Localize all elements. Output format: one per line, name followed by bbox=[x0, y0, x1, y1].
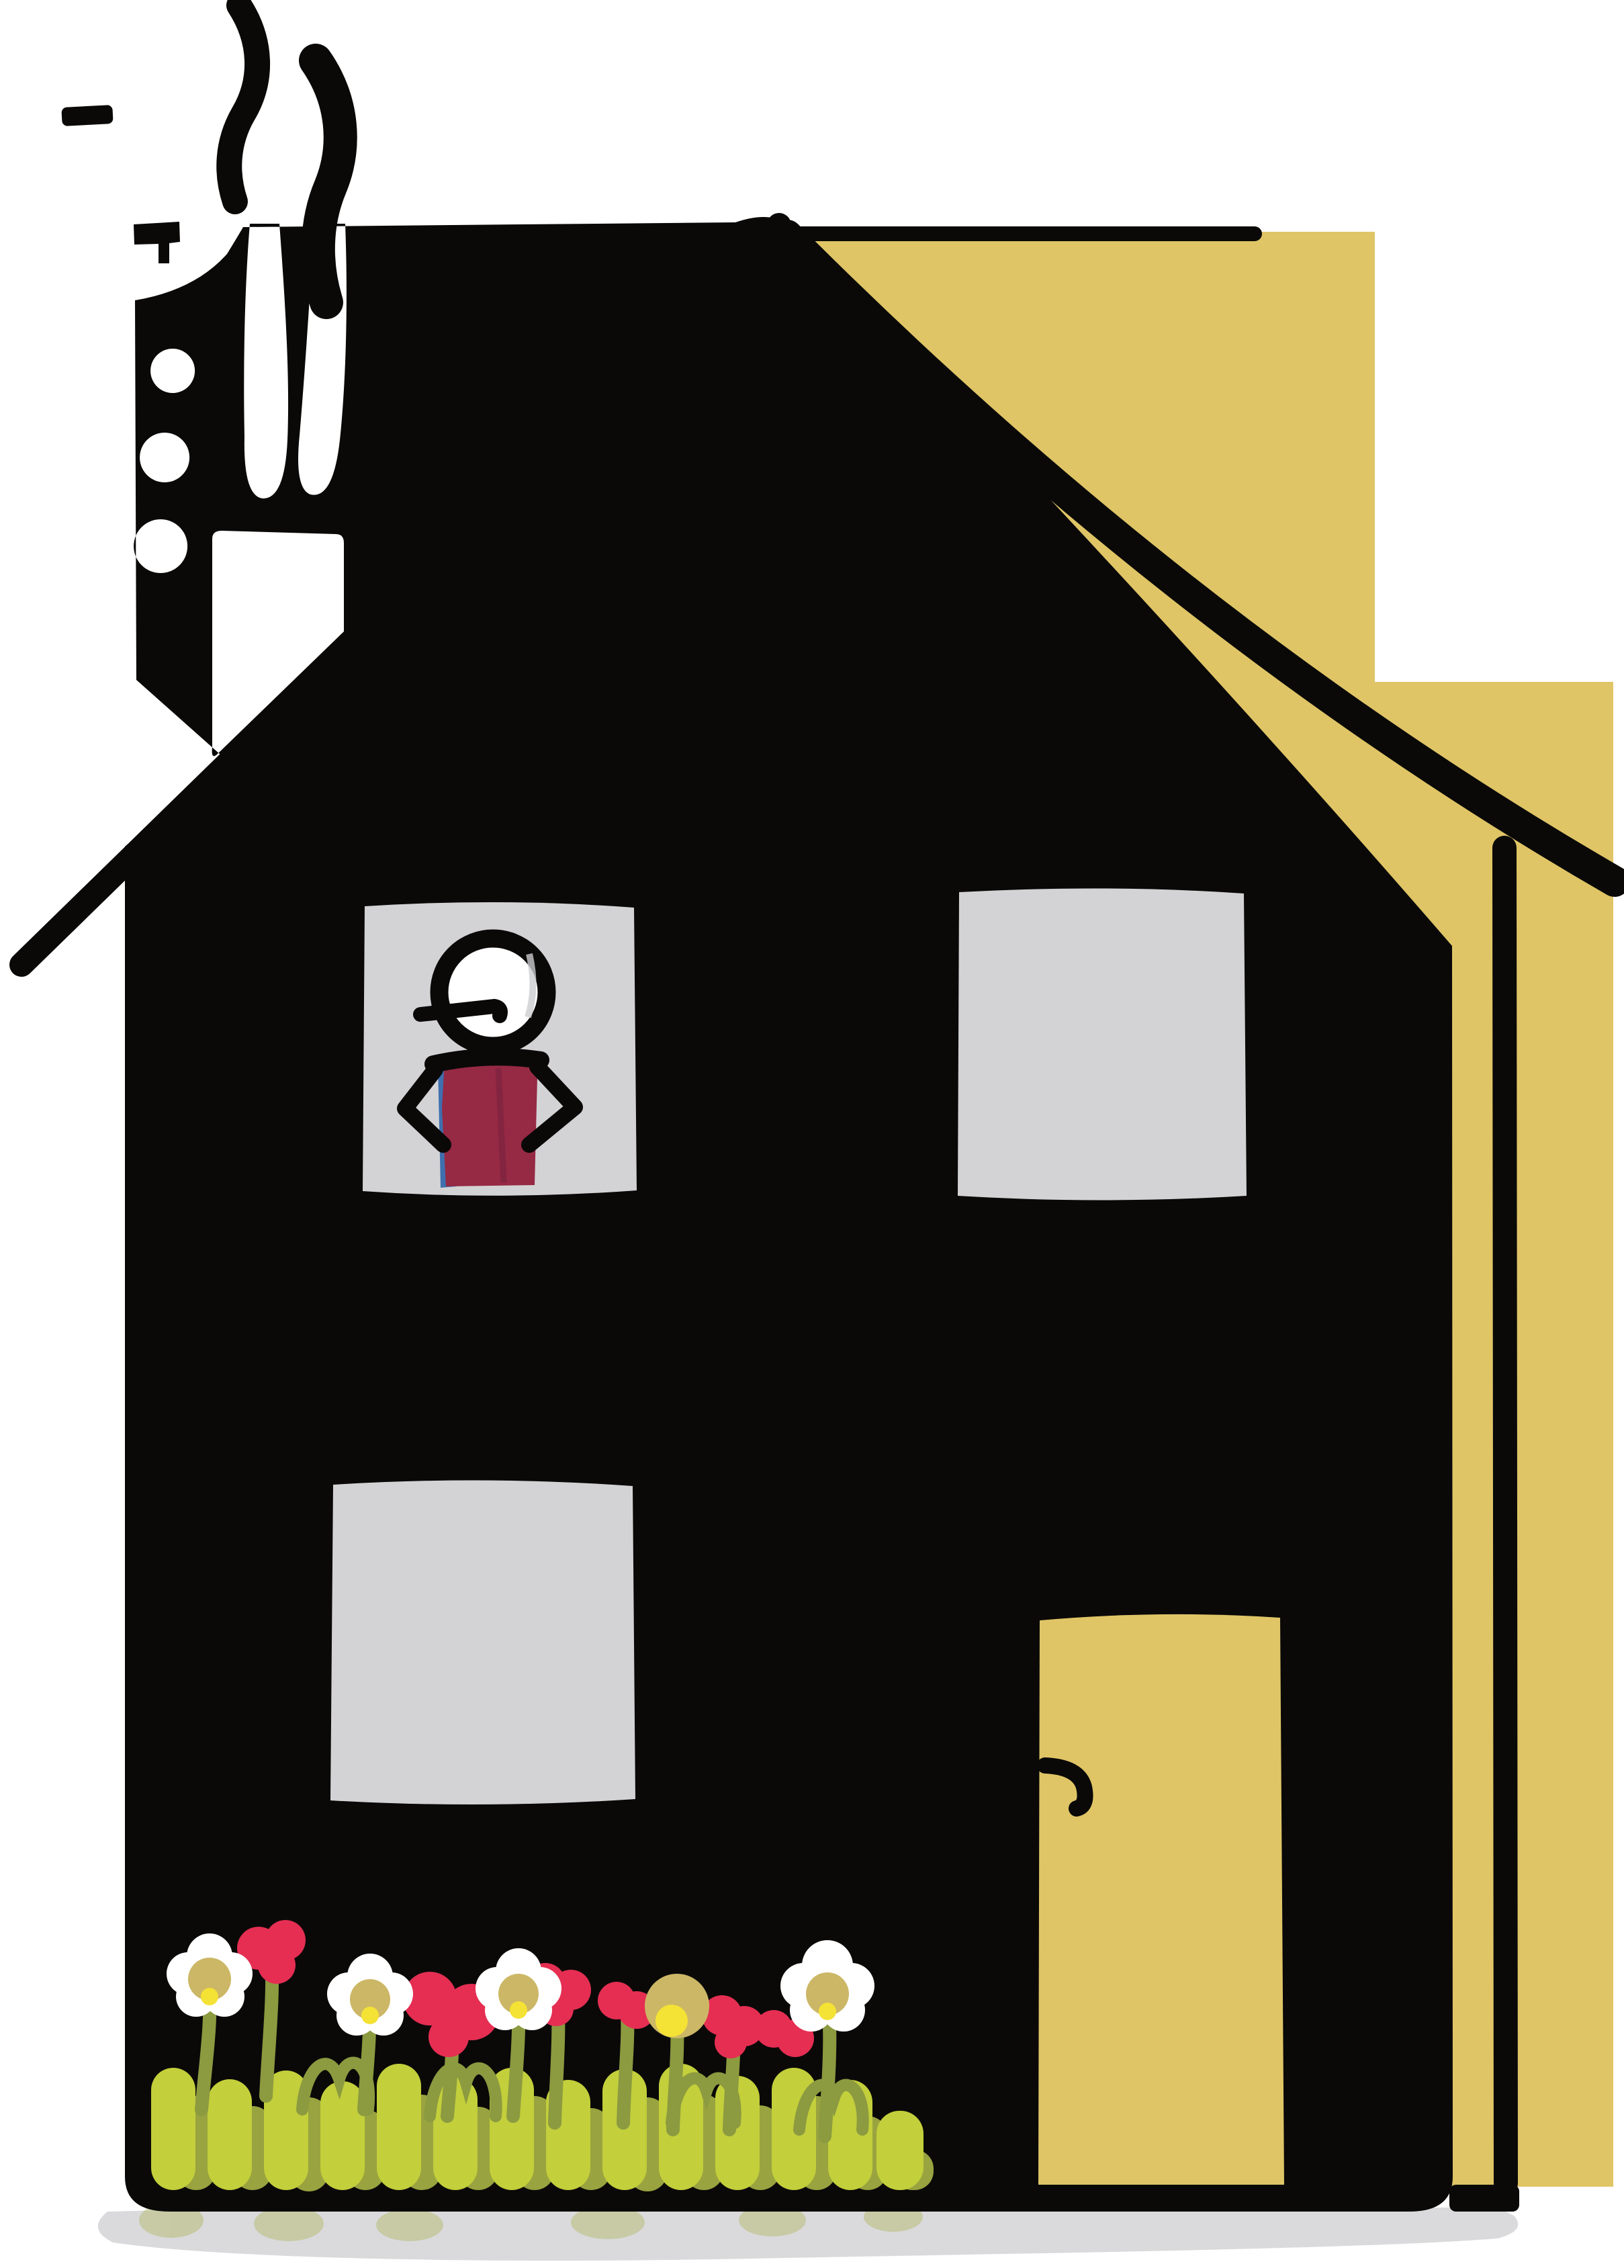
door-panel bbox=[1038, 1614, 1284, 2185]
window-lower-left bbox=[310, 1459, 660, 1827]
illustration-stage bbox=[0, 0, 1624, 2268]
shirt bbox=[442, 1055, 537, 1186]
house-illustration bbox=[0, 0, 1624, 2268]
window-upper-left bbox=[339, 877, 662, 1217]
base-bar-extension bbox=[1449, 2185, 1519, 2212]
front-door bbox=[1011, 1594, 1307, 2201]
window-glass bbox=[958, 888, 1247, 1200]
shoulders bbox=[433, 1057, 541, 1064]
window-upper-right bbox=[939, 869, 1271, 1219]
window-glass bbox=[330, 1480, 635, 1804]
chimney-dash bbox=[61, 105, 113, 126]
tan-flower bbox=[645, 1974, 709, 2038]
right-edge-line bbox=[1504, 848, 1506, 2183]
face-line bbox=[420, 1006, 500, 1016]
